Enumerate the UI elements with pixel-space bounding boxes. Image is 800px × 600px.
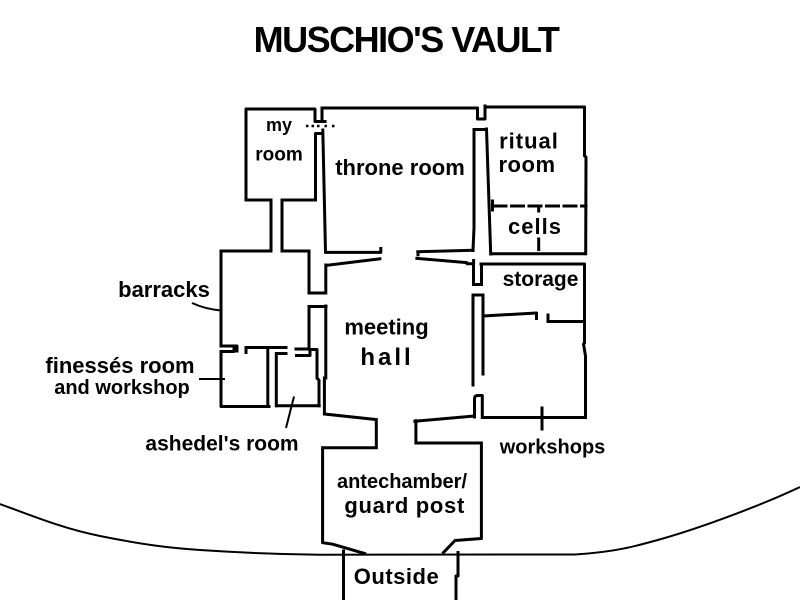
svg-text:guard post: guard post: [344, 493, 465, 518]
svg-text:antechamber/: antechamber/: [337, 471, 467, 493]
svg-text:throne room: throne room: [335, 155, 465, 180]
svg-text:and workshop: and workshop: [54, 377, 190, 399]
svg-text:workshops: workshops: [499, 437, 606, 459]
svg-text:my: my: [266, 115, 292, 135]
svg-text:room: room: [255, 145, 303, 166]
svg-text:ritual: ritual: [499, 129, 559, 154]
svg-text:MUSCHIO'S VAULT: MUSCHIO'S VAULT: [254, 19, 560, 60]
svg-text:Outside: Outside: [354, 564, 439, 589]
svg-text:room: room: [499, 152, 556, 177]
svg-text:cells: cells: [508, 214, 562, 239]
svg-text:barracks: barracks: [118, 277, 210, 302]
svg-text:ashedel's room: ashedel's room: [145, 433, 298, 456]
svg-text:finessés room: finessés room: [45, 353, 194, 378]
svg-text:meeting: meeting: [344, 315, 428, 340]
svg-text:storage: storage: [503, 268, 579, 291]
svg-text:hall: hall: [360, 344, 413, 371]
